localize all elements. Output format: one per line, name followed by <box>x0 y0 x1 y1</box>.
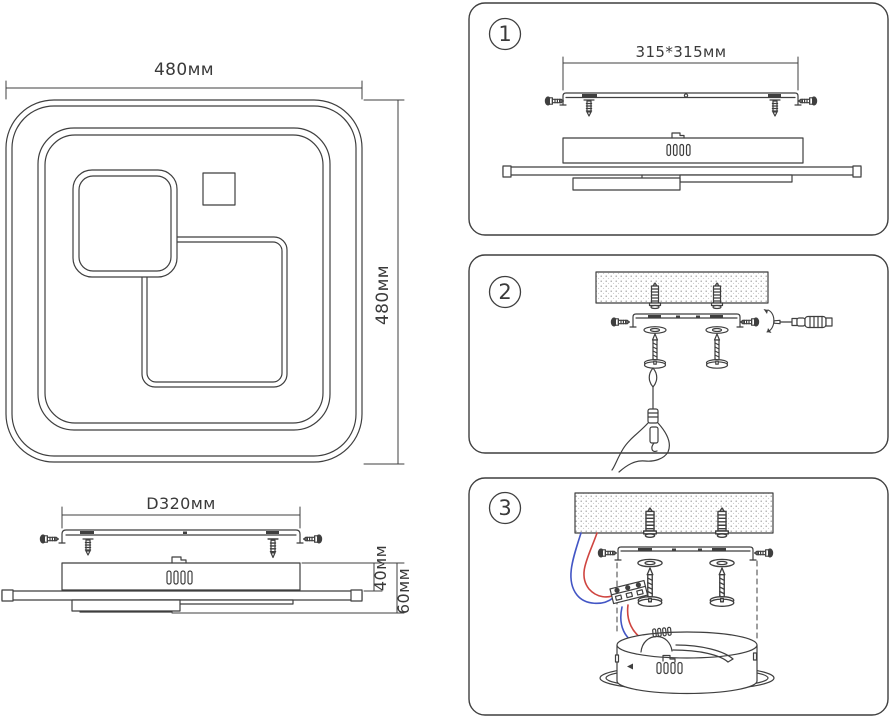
side-view-drawing <box>2 507 404 613</box>
line-art <box>0 0 894 720</box>
step-panel-2 <box>469 255 888 472</box>
mounting-bracket <box>59 530 303 543</box>
step1-dimension-label: 315*315мм <box>564 43 798 61</box>
step3-number: 3 <box>489 493 521 523</box>
side-view-width-label: D320мм <box>62 494 300 513</box>
step-panel-3 <box>469 478 888 715</box>
bracket-screw-icon <box>584 100 780 116</box>
upper-left-square <box>73 170 177 277</box>
side-screw-icon <box>598 549 772 557</box>
top-view-height-label: 480мм <box>373 248 393 342</box>
light-panel-layers <box>2 590 362 612</box>
ceiling <box>575 493 773 533</box>
step1-number: 1 <box>489 19 521 49</box>
screwdriver-icon <box>774 317 832 328</box>
panel-border <box>469 3 888 235</box>
power-cable-icon <box>612 368 669 472</box>
top-view-width-dimension <box>6 81 362 99</box>
mounting-bracket <box>560 93 801 105</box>
mounting-bracket <box>615 547 756 560</box>
washer-icon <box>638 559 734 566</box>
top-view-width-label: 480мм <box>6 60 362 80</box>
screw-icon <box>645 334 728 368</box>
rotation-arrow-icon <box>764 309 774 333</box>
step-panel-1 <box>469 3 888 235</box>
side-view-height-60-label: 60мм <box>394 544 414 638</box>
ceiling <box>596 272 768 303</box>
bracket-screw-icon <box>83 539 278 557</box>
mounting-bracket <box>630 314 743 327</box>
driver-housing <box>62 557 300 590</box>
top-view-drawing <box>6 81 404 464</box>
installation-instructions-sheet: 480мм 480мм D320мм 40мм 60мм 315*315мм 1… <box>0 0 894 720</box>
step2-number: 2 <box>489 277 521 307</box>
side-view-height-40-label: 40мм <box>371 521 391 615</box>
canopy-drum <box>600 627 774 693</box>
lamp-profile <box>503 133 861 190</box>
bracket-dimension <box>563 57 798 90</box>
driver-box-square <box>203 173 235 205</box>
washer-icon <box>644 327 728 334</box>
screw-icon <box>638 568 734 606</box>
